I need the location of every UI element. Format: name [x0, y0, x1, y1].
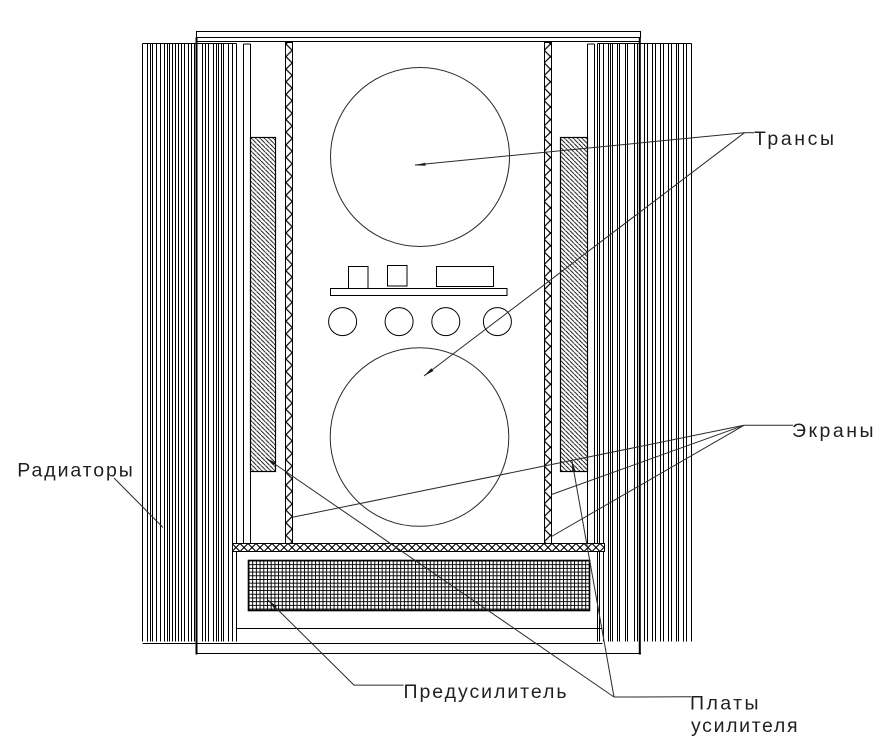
svg-text:Предусилитель: Предусилитель: [404, 681, 567, 703]
svg-text:Радиаторы: Радиаторы: [17, 460, 133, 482]
svg-text:Платы: Платы: [690, 692, 759, 714]
svg-text:Экраны: Экраны: [792, 420, 874, 442]
svg-text:усилителя: усилителя: [691, 715, 798, 737]
